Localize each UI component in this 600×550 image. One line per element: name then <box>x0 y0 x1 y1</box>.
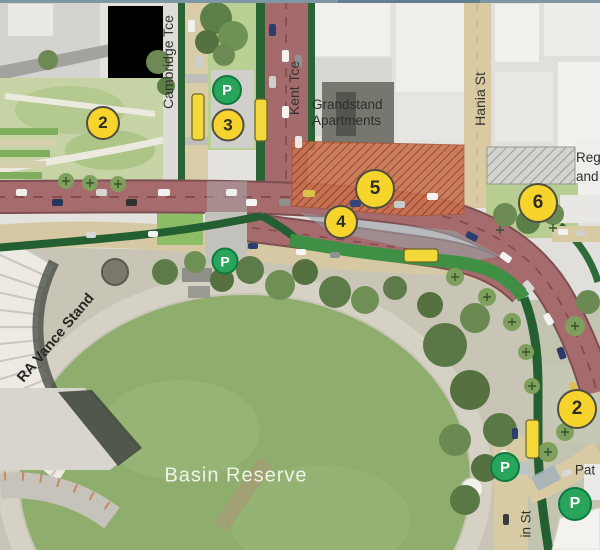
top-border <box>0 0 600 3</box>
callout-marker-6[interactable]: 6 <box>518 183 558 223</box>
callout-marker-2-nw[interactable]: 2 <box>86 106 120 140</box>
street-label-cambridge-tce: Cambridge Tce <box>160 15 176 109</box>
street-label-dufferin-st-partial: in St <box>519 510 534 537</box>
grandstand-apartments-line1: Grandstand <box>312 97 383 113</box>
grandstand-apartments-label: Grandstand Apartments <box>312 97 383 129</box>
clipped-right-label: Reg and <box>576 148 600 186</box>
parking-marker-dufferin[interactable]: P <box>490 452 520 482</box>
street-label-hania-st: Hania St <box>472 72 488 126</box>
callout-marker-4[interactable]: 4 <box>324 205 358 239</box>
basin-reserve-aerial-map: Cambridge Tce Kent Tce Hania St Pat in S… <box>0 0 600 550</box>
bus-icon <box>255 99 267 141</box>
grandstand-apartments-line2: Apartments <box>312 113 383 129</box>
street-label-paterson-st-partial: Pat <box>575 463 595 478</box>
clipped-right-line2: and <box>576 167 600 186</box>
parking-marker-paterson[interactable]: P <box>558 487 592 521</box>
street-label-kent-tce: Kent Tce <box>286 61 302 115</box>
northwest-park <box>0 78 163 190</box>
parking-marker-kent-median[interactable]: P <box>212 75 242 105</box>
bus-icon <box>526 420 539 458</box>
callout-marker-2-se[interactable]: 2 <box>557 389 597 429</box>
callout-marker-3[interactable]: 3 <box>212 109 245 142</box>
callout-marker-5[interactable]: 5 <box>355 169 395 209</box>
basin-reserve-label: Basin Reserve <box>164 465 307 488</box>
parking-marker-basin-entrance[interactable]: P <box>212 248 239 275</box>
bus-icon <box>404 249 438 262</box>
clipped-right-line1: Reg <box>576 148 600 167</box>
bus-icon <box>192 94 204 140</box>
